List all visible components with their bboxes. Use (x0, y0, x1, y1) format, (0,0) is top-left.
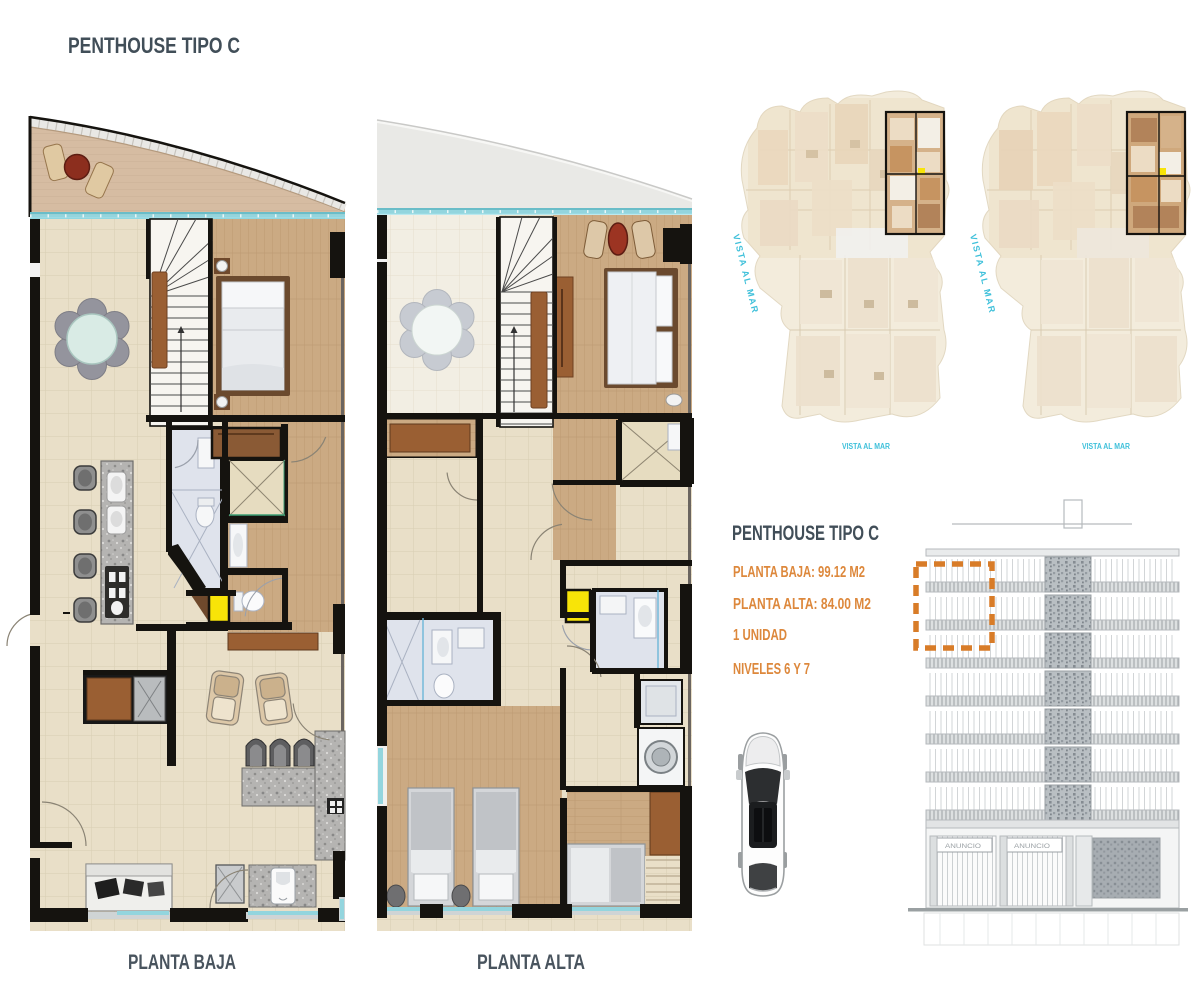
svg-text:PENTHOUSE TIPO C: PENTHOUSE TIPO C (68, 33, 240, 58)
svg-text:1 UNIDAD: 1 UNIDAD (733, 627, 787, 644)
svg-text:VISTA AL MAR: VISTA AL MAR (1082, 442, 1130, 451)
svg-text:VISTA AL MAR: VISTA AL MAR (842, 442, 890, 451)
svg-text:PLANTA BAJA: PLANTA BAJA (128, 951, 236, 974)
svg-text:ANUNCIO: ANUNCIO (1014, 843, 1050, 850)
svg-text:PLANTA BAJA: 99.12 M2: PLANTA BAJA: 99.12 M2 (733, 564, 865, 581)
svg-text:PLANTA ALTA: PLANTA ALTA (477, 951, 585, 974)
svg-text:ANUNCIO: ANUNCIO (945, 843, 981, 850)
svg-text:PENTHOUSE TIPO C: PENTHOUSE TIPO C (732, 522, 879, 545)
svg-text:NIVELES 6 Y 7: NIVELES 6 Y 7 (733, 661, 810, 678)
svg-text:PLANTA ALTA: 84.00 M2: PLANTA ALTA: 84.00 M2 (733, 596, 871, 613)
